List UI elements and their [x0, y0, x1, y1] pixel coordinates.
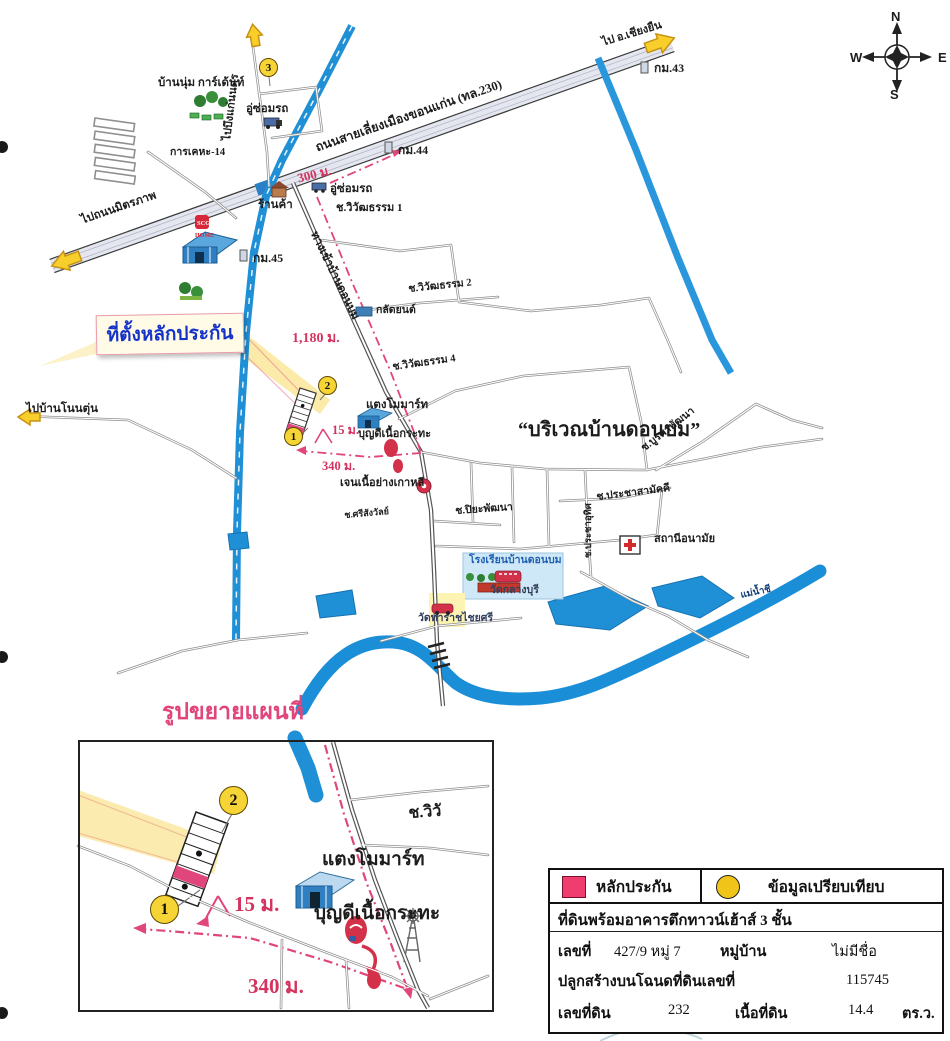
legend: หลักประกัน ข้อมูลเปรียบเทียบ: [548, 868, 944, 905]
area-unit: ตร.ว.: [902, 1002, 935, 1025]
label-repair-shop-1: อู่ซ่อมรถ: [246, 104, 288, 116]
label-health-station: สถานีอนามัย: [654, 534, 715, 545]
label-soi-pracha-uthit: ช.ประชาอุทิศ: [585, 503, 595, 558]
label-baan-num-garden: บ้านนุ่ม การ์เด้นท์: [158, 78, 244, 90]
label-klat-yon: กลัดยนต์: [376, 306, 416, 317]
legend-comparison-label: ข้อมูลเปรียบเทียบ: [768, 874, 884, 899]
property-table: ที่ดินพร้อมอาคารตึกทาวน์เฮ้าส์ 3 ชั้น เล…: [548, 902, 944, 1034]
label-distance-15m: 15 ม.: [332, 424, 359, 437]
label-km43: กม.43: [654, 62, 684, 74]
compass-e: E: [938, 51, 947, 64]
parcel-label: เลขที่ดิน: [558, 1002, 611, 1025]
collateral-callout-label: ที่ตั้งหลักประกัน: [106, 318, 233, 350]
village-label: หมู่บ้าน: [720, 940, 766, 963]
inset-label-boondee: บุญดีเนื้อกระทะ: [314, 904, 440, 923]
scg-home-text: HOME: [195, 233, 214, 239]
village-value: ไม่มีชื่อ: [832, 940, 877, 963]
farm-trees-icon: [179, 282, 203, 300]
inset-marker-2: 2: [219, 786, 248, 815]
health-cross-icon: [620, 536, 640, 554]
inset-label-soi: ช.วิวั: [408, 804, 442, 822]
deed-value: 115745: [846, 972, 889, 989]
collateral-swatch-icon: [562, 876, 586, 898]
trees-icon: [190, 91, 228, 120]
bypass-highway: [50, 38, 675, 272]
marker-3: 3: [259, 58, 278, 77]
restaurant-icon: [393, 459, 403, 473]
house-no-label: เลขที่: [558, 940, 591, 963]
deed-label: ปลูกสร้างบนโฉนดที่ดินเลขที่: [558, 970, 735, 993]
scg-logo-text: SCG: [197, 220, 210, 227]
property-title: ที่ดินพร้อมอาคารตึกทาวน์เฮ้าส์ 3 ชั้น: [558, 908, 792, 932]
compass-icon: [862, 22, 932, 92]
inset-label-taengmo: แตงโมมาร์ท: [322, 850, 425, 869]
label-shop: ร้านค้า: [258, 200, 293, 212]
inset-label-340m: 340 ม.: [248, 976, 304, 997]
house-no-value: 427/9 หมู่ 7: [614, 940, 681, 963]
label-jen-bbq: เจนเนื้อย่างเกาหลี: [340, 478, 424, 489]
label-wat-tha-rat: วัดท่าราชไชยศรี: [418, 614, 493, 625]
label-distance-1180m: 1,180 ม.: [292, 332, 340, 346]
temple-icon: [495, 571, 521, 582]
compass-n: N: [891, 10, 900, 23]
label-repair-shop-2: อู่ซ่อมรถ: [330, 184, 372, 196]
area-label: เนื้อที่ดิน: [735, 1002, 787, 1025]
inset-title: รูปขยายแผนที่: [162, 700, 304, 723]
label-wat-klang-buri: วัดกลางบุรี: [490, 586, 539, 597]
punch-holes: [0, 141, 8, 1019]
label-km45: กม.45: [253, 252, 283, 264]
restaurant-icon: [384, 439, 398, 457]
housing-estate: [87, 118, 143, 184]
label-kan-kheha: การเคหะ-14: [170, 148, 225, 159]
milestone-icon: [240, 62, 648, 261]
collateral-callout: ที่ตั้งหลักประกัน: [96, 313, 245, 356]
comparison-circle-icon: [716, 875, 740, 899]
legend-collateral-label: หลักประกัน: [596, 874, 672, 899]
area-value: 14.4: [848, 1002, 873, 1019]
table-divider: [550, 931, 942, 932]
label-to-ban-non-tun: ไปบ้านโนนตุ่น: [26, 404, 98, 416]
compass-s: S: [890, 88, 899, 101]
label-boondee: บุญดีเนื้อกระทะ: [358, 429, 431, 440]
label-distance-340m: 340 ม.: [322, 460, 355, 473]
legend-collateral: หลักประกัน: [550, 870, 702, 903]
label-km44: กม.44: [398, 144, 428, 156]
label-soi-wiwat-1: ช.วิวัฒธรรม 1: [336, 203, 403, 214]
map-page: SCG HOME: [0, 0, 950, 1041]
marker-2: 2: [318, 376, 337, 395]
marker-1: 1: [284, 427, 303, 446]
inset-marker-1: 1: [150, 895, 179, 924]
label-school: โรงเรียนบ้านดอนบม: [469, 556, 562, 567]
parcel-value: 232: [668, 1002, 690, 1019]
inset-label-15m: 15 ม.: [234, 894, 279, 915]
legend-comparison: ข้อมูลเปรียบเทียบ: [702, 870, 884, 903]
inset-map-frame: [78, 740, 494, 1012]
label-taengmo-mart: แตงโมมาร์ท: [366, 400, 428, 412]
compass-w: W: [850, 51, 862, 64]
